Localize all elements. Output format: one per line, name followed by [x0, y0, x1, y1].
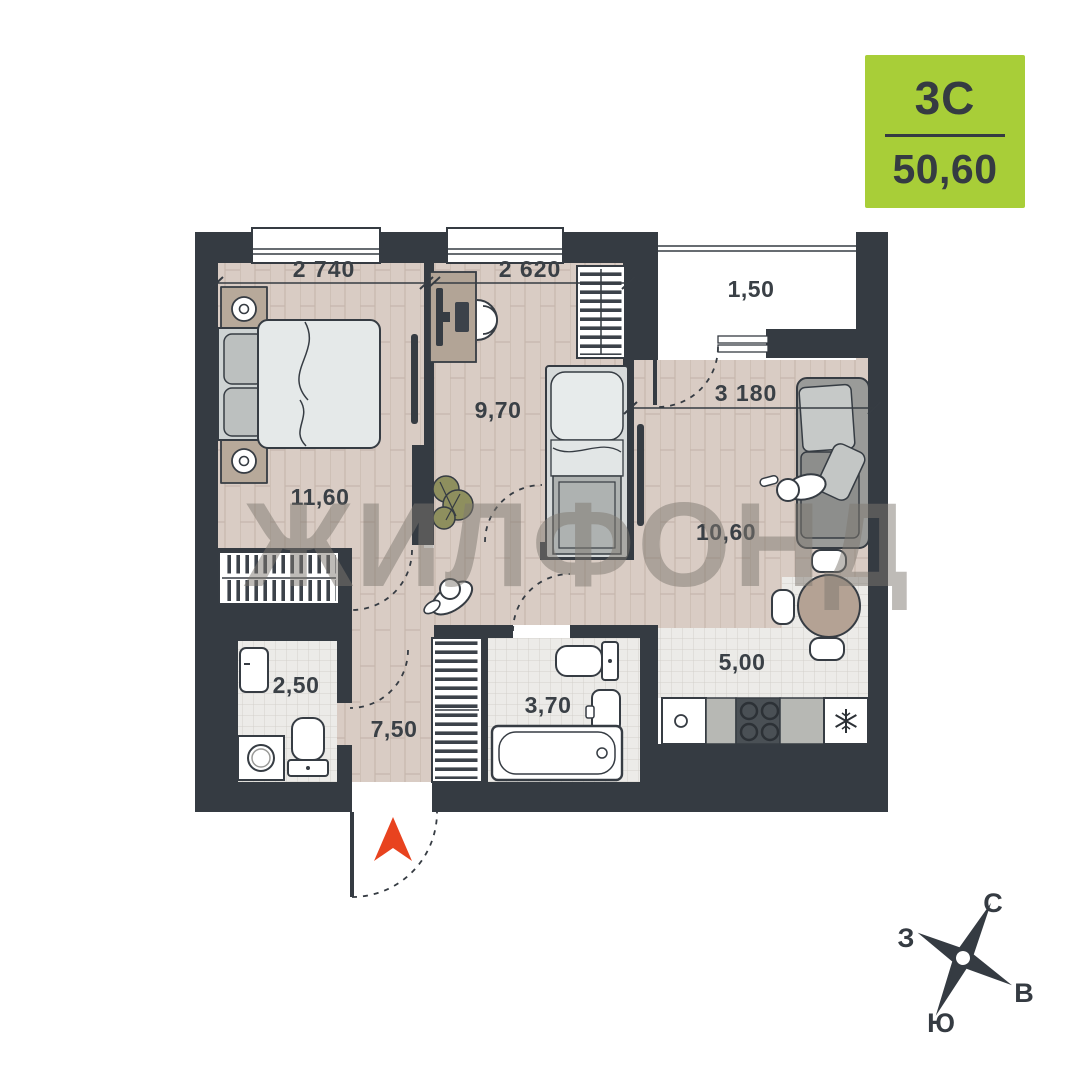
area-wc: 2,50 [273, 672, 320, 698]
plan-area-label: 50,60 [892, 146, 997, 193]
area-bathroom: 3,70 [525, 692, 572, 718]
area-bedroom2: 9,70 [475, 397, 522, 423]
floor-plan-page: 2 740 2 620 3 180 1,50 9,70 11,60 10,60 … [0, 0, 1080, 1080]
tv-icon [411, 334, 418, 424]
compass-east-label: В [1014, 978, 1034, 1008]
area-balcony: 1,50 [728, 276, 775, 302]
monitor-icon [436, 288, 443, 346]
bathtub-icon [492, 726, 622, 780]
dim-bedroom1: 2 740 [293, 256, 356, 282]
balcony-door-threshold [718, 336, 768, 343]
blanket-icon [258, 320, 380, 448]
entry-arrow-icon [374, 817, 412, 861]
compass-star-icon [888, 879, 1041, 1040]
compass-west-label: З [898, 923, 915, 953]
compass-south-label: Ю [927, 1008, 955, 1038]
toilet-icon [556, 642, 618, 680]
sink-icon [240, 648, 268, 692]
toilet-icon [288, 718, 328, 776]
badge-divider [885, 134, 1005, 137]
keyboard-icon [455, 302, 469, 332]
plan-type-label: 3С [915, 71, 976, 125]
pillow-icon [551, 372, 623, 440]
lamp-icon [232, 449, 256, 473]
blanket-icon [551, 440, 623, 476]
dim-living: 3 180 [715, 380, 778, 406]
watermark: ЖИЛФОНД [243, 478, 912, 612]
plan-badge: 3С 50,60 [865, 55, 1025, 208]
compass: С З В Ю [888, 879, 1041, 1040]
compass-north-label: С [983, 888, 1003, 918]
dim-bedroom2: 2 620 [499, 256, 562, 282]
counter-icon [706, 698, 736, 744]
area-kitchen: 5,00 [719, 649, 766, 675]
counter-icon [780, 698, 824, 744]
chair-icon [810, 638, 844, 660]
area-hall: 7,50 [371, 716, 418, 742]
lamp-icon [232, 297, 256, 321]
kitchen-furniture [662, 698, 868, 744]
wc-door-gap [337, 703, 352, 745]
